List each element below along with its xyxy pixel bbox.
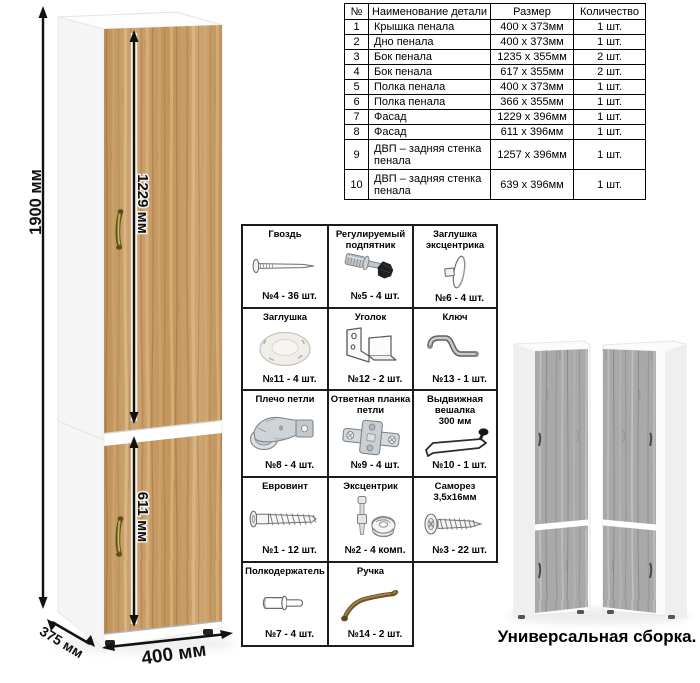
svg-text:1900 мм: 1900 мм [27,169,45,235]
svg-text:1229 мм: 1229 мм [134,174,151,234]
svg-text:611 мм: 611 мм [134,492,151,543]
